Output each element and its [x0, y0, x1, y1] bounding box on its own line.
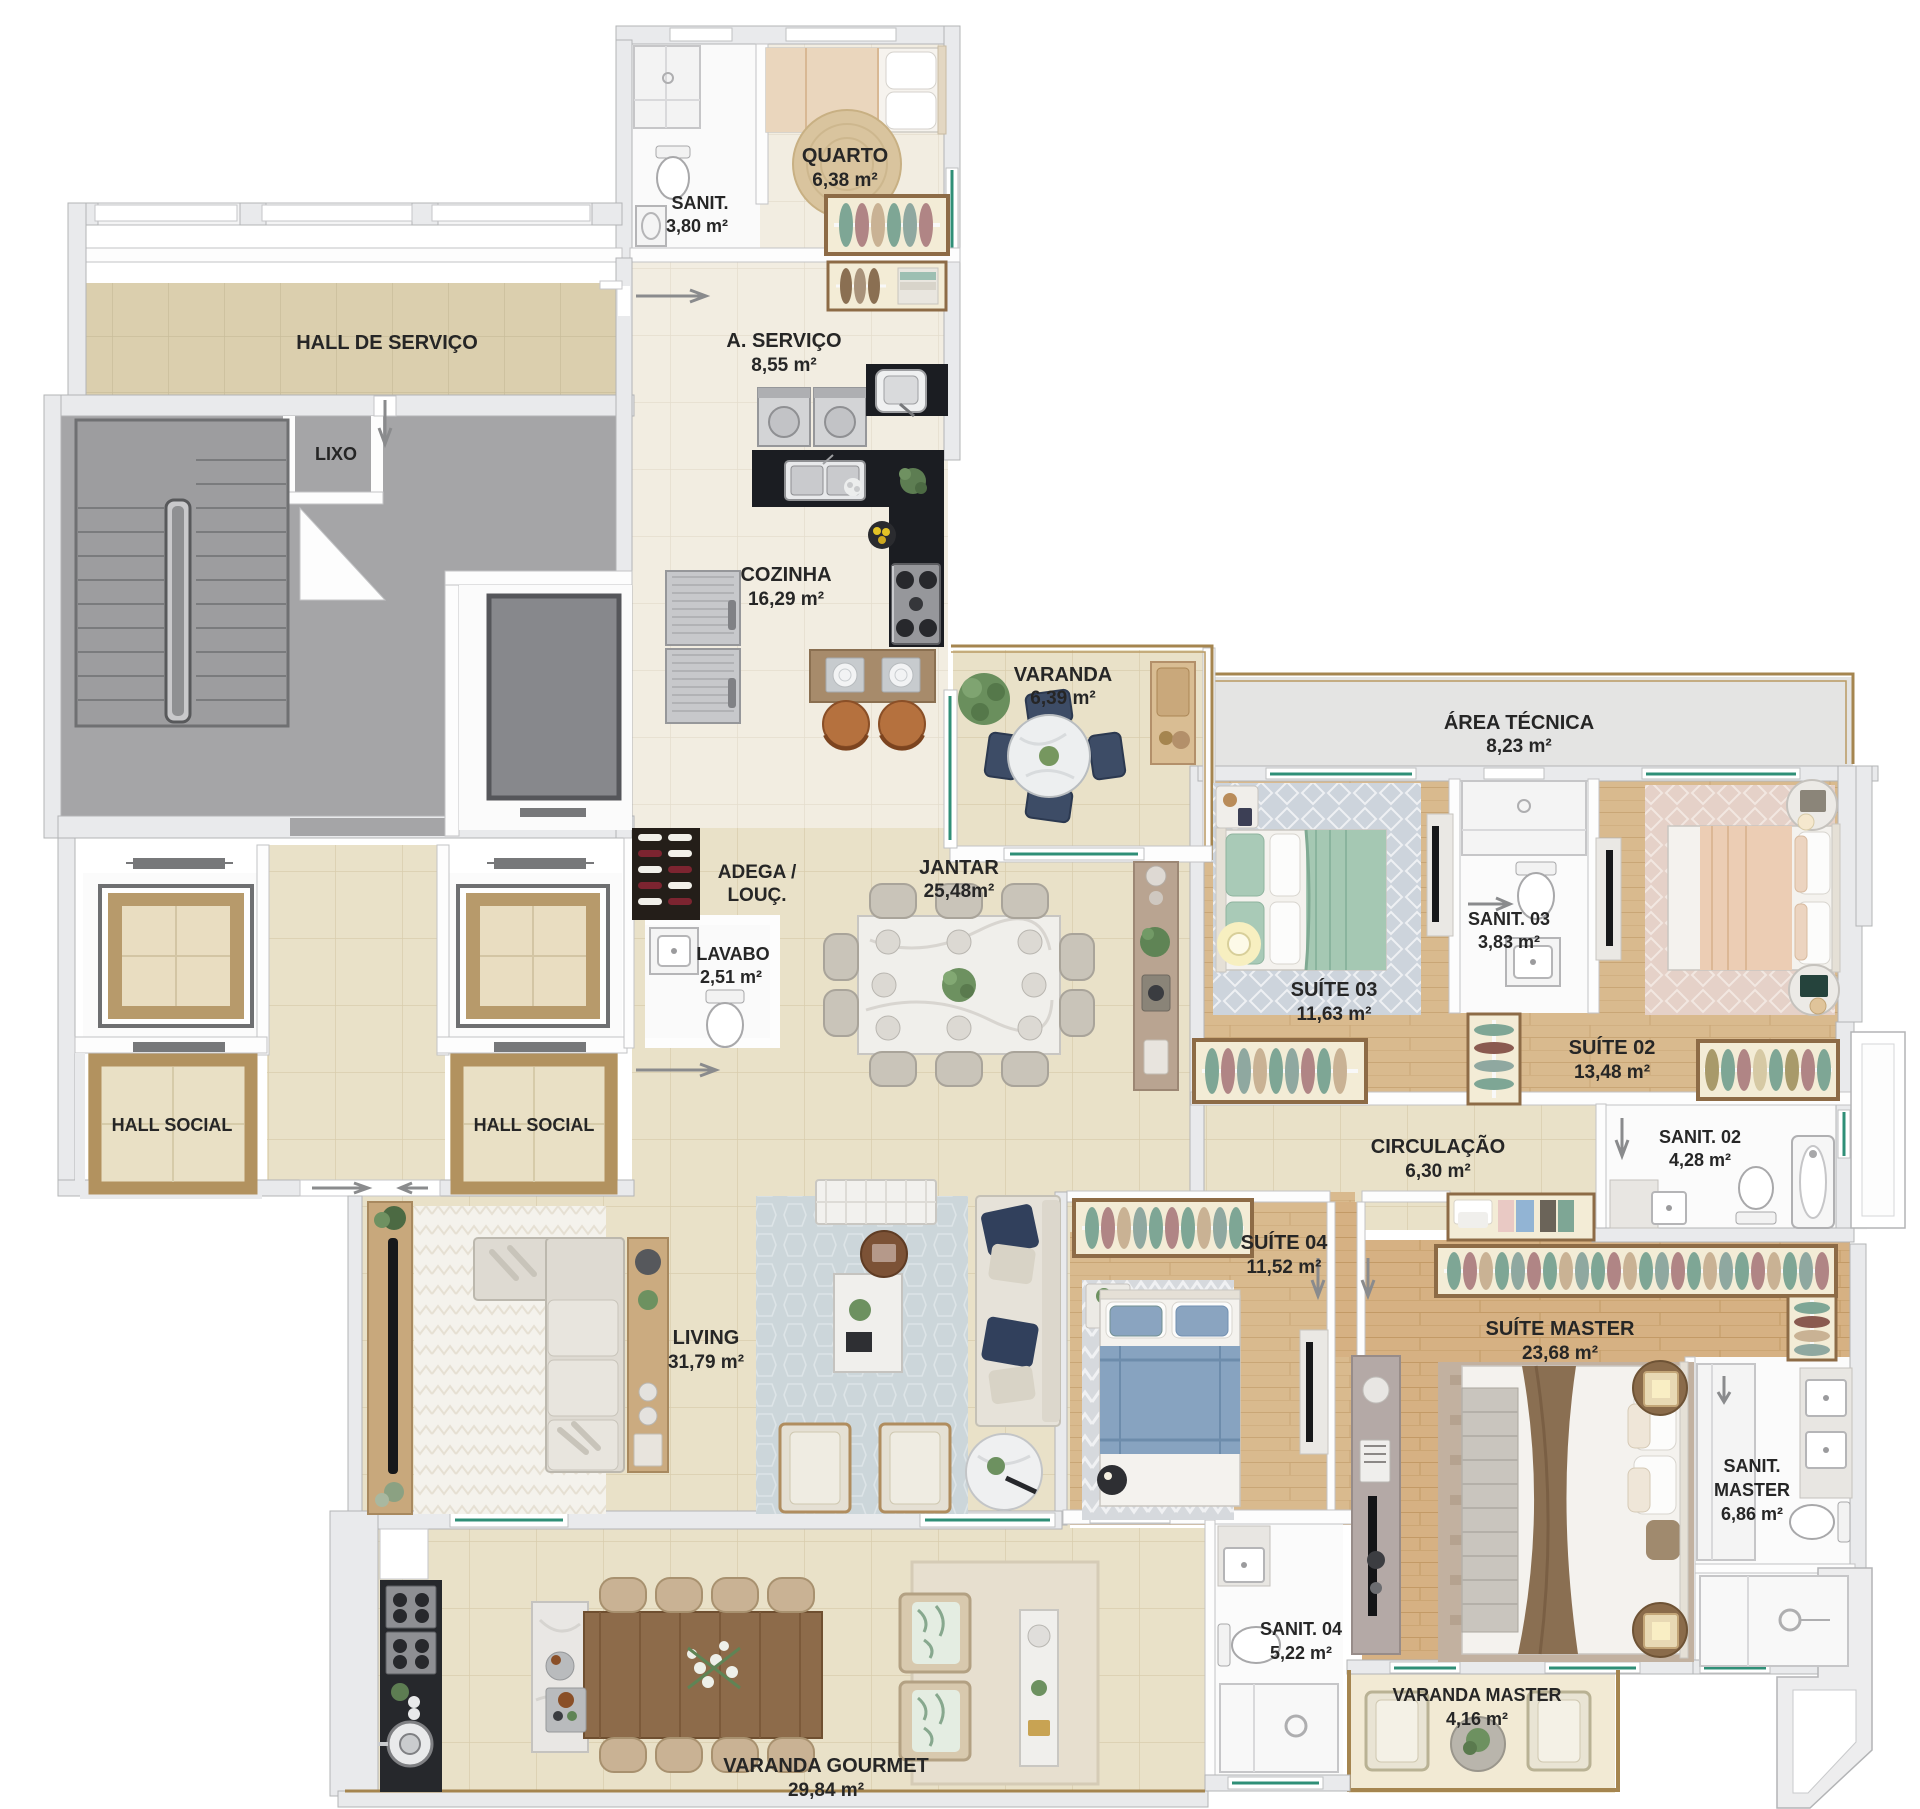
svg-text:LAVABO: LAVABO: [696, 944, 769, 964]
svg-text:31,79 m²: 31,79 m²: [668, 1352, 744, 1373]
svg-text:A. SERVIÇO: A. SERVIÇO: [726, 330, 841, 352]
svg-text:6,38 m²: 6,38 m²: [812, 170, 877, 191]
svg-text:VARANDA GOURMET: VARANDA GOURMET: [723, 1755, 929, 1777]
svg-text:HALL SOCIAL: HALL SOCIAL: [474, 1115, 595, 1135]
svg-text:VARANDA MASTER: VARANDA MASTER: [1393, 1685, 1562, 1705]
svg-text:13,48 m²: 13,48 m²: [1574, 1062, 1650, 1083]
svg-text:HALL SOCIAL: HALL SOCIAL: [112, 1115, 233, 1135]
svg-text:3,83 m²: 3,83 m²: [1478, 932, 1540, 952]
svg-text:SUÍTE 03: SUÍTE 03: [1291, 978, 1378, 1001]
svg-text:SANIT. 03: SANIT. 03: [1468, 909, 1550, 929]
svg-text:16,29 m²: 16,29 m²: [748, 589, 824, 610]
svg-text:SANIT. 02: SANIT. 02: [1659, 1127, 1741, 1147]
svg-text:HALL DE SERVIÇO: HALL DE SERVIÇO: [296, 332, 478, 354]
svg-text:25,48m²: 25,48m²: [924, 881, 995, 902]
svg-text:COZINHA: COZINHA: [740, 564, 831, 586]
svg-text:SANIT.: SANIT.: [671, 193, 728, 213]
svg-text:4,28 m²: 4,28 m²: [1669, 1150, 1731, 1170]
svg-text:QUARTO: QUARTO: [802, 145, 888, 167]
svg-text:SUÍTE 04: SUÍTE 04: [1241, 1231, 1329, 1254]
svg-text:29,84 m²: 29,84 m²: [788, 1780, 864, 1801]
svg-text:CIRCULAÇÃO: CIRCULAÇÃO: [1371, 1135, 1505, 1158]
svg-text:5,22 m²: 5,22 m²: [1270, 1643, 1332, 1663]
svg-text:11,63 m²: 11,63 m²: [1297, 1004, 1372, 1025]
svg-text:LIXO: LIXO: [315, 444, 357, 464]
svg-text:LOUÇ.: LOUÇ.: [727, 885, 786, 906]
svg-text:6,86 m²: 6,86 m²: [1721, 1504, 1783, 1524]
svg-text:MASTER: MASTER: [1714, 1480, 1790, 1500]
svg-text:6,39 m²: 6,39 m²: [1030, 688, 1095, 709]
svg-text:4,16 m²: 4,16 m²: [1446, 1709, 1508, 1729]
svg-text:11,52 m²: 11,52 m²: [1247, 1257, 1322, 1278]
svg-text:ÁREA TÉCNICA: ÁREA TÉCNICA: [1444, 711, 1594, 734]
svg-text:JANTAR: JANTAR: [919, 857, 999, 879]
svg-text:LIVING: LIVING: [673, 1327, 740, 1349]
svg-text:6,30 m²: 6,30 m²: [1405, 1161, 1470, 1182]
svg-text:SANIT. 04: SANIT. 04: [1260, 1619, 1342, 1639]
svg-text:8,23 m²: 8,23 m²: [1486, 736, 1551, 757]
svg-text:SUÍTE MASTER: SUÍTE MASTER: [1486, 1317, 1635, 1340]
svg-text:8,55 m²: 8,55 m²: [751, 355, 816, 376]
svg-text:2,51 m²: 2,51 m²: [700, 967, 762, 987]
svg-text:VARANDA: VARANDA: [1014, 664, 1113, 686]
svg-text:23,68 m²: 23,68 m²: [1522, 1343, 1598, 1364]
svg-text:3,80 m²: 3,80 m²: [666, 216, 728, 236]
svg-text:ADEGA /: ADEGA /: [718, 862, 797, 883]
svg-text:SUÍTE 02: SUÍTE 02: [1569, 1036, 1656, 1059]
svg-text:SANIT.: SANIT.: [1723, 1456, 1780, 1476]
